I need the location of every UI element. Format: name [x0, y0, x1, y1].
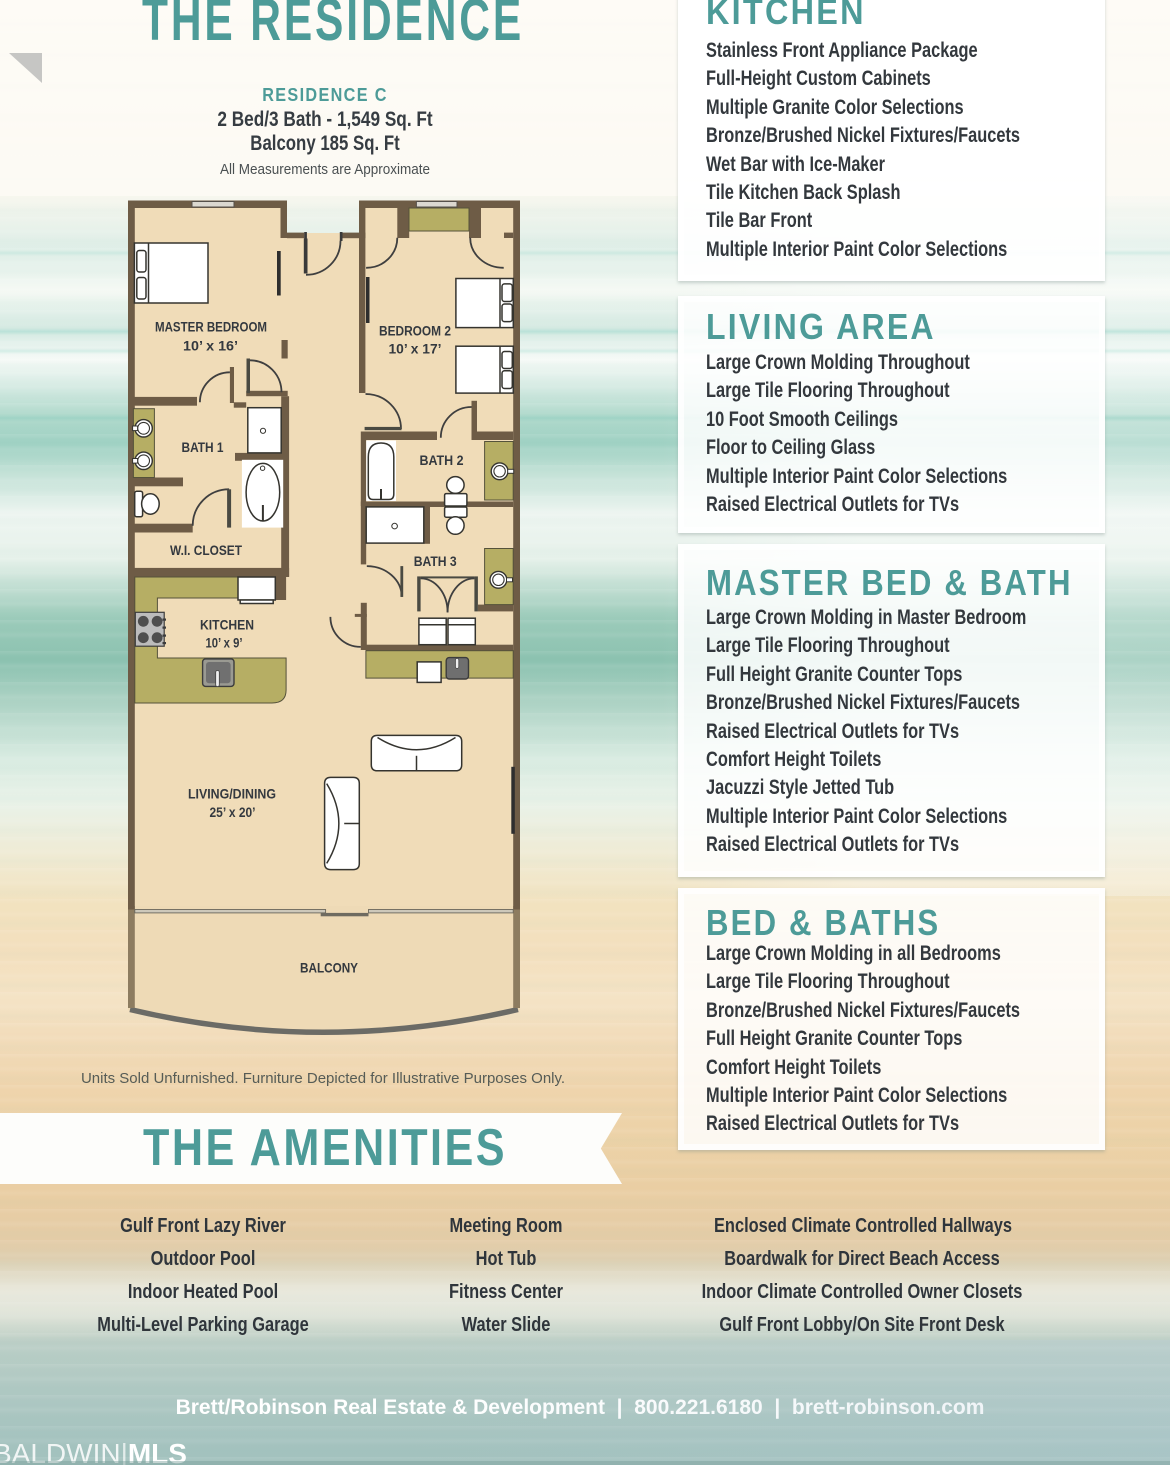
svg-text:KITCHEN: KITCHEN — [200, 618, 254, 633]
svg-text:W.I. CLOSET: W.I. CLOSET — [170, 543, 243, 558]
svg-text:10’ x 17’: 10’ x 17’ — [389, 342, 442, 357]
svg-text:LIVING/DINING: LIVING/DINING — [188, 787, 276, 802]
svg-text:BEDROOM 2: BEDROOM 2 — [379, 324, 451, 339]
svg-text:MASTER BEDROOM: MASTER BEDROOM — [155, 320, 267, 335]
svg-text:10’ x 16’: 10’ x 16’ — [183, 339, 238, 354]
svg-text:BALCONY: BALCONY — [300, 961, 358, 976]
svg-text:BATH 3: BATH 3 — [414, 554, 457, 569]
svg-text:25’ x 20’: 25’ x 20’ — [210, 805, 256, 820]
svg-text:BATH 1: BATH 1 — [182, 440, 224, 455]
svg-text:10’ x 9’: 10’ x 9’ — [206, 636, 243, 651]
svg-text:BATH 2: BATH 2 — [420, 453, 464, 468]
